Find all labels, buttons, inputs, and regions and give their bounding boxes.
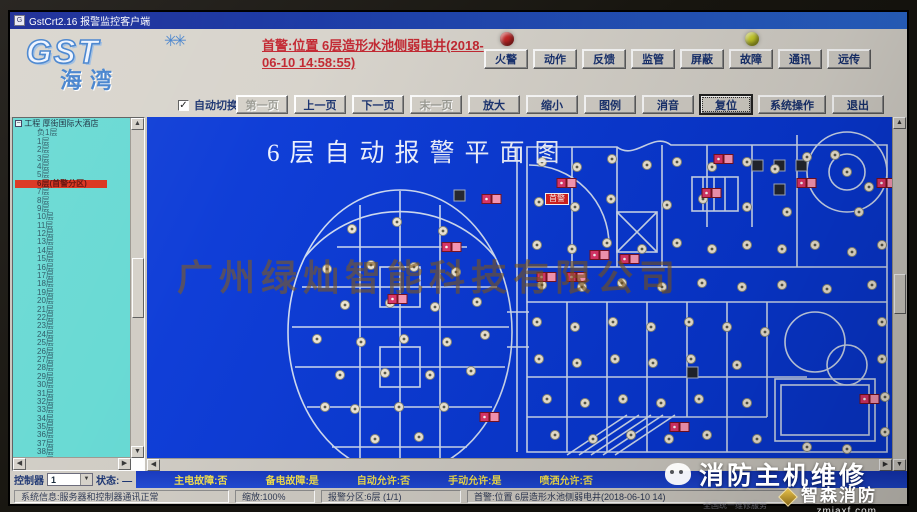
floor-list: 负1层1层2层3层4层5层6层(首警分区)7层8层9层10层11层12层13层1… <box>15 129 131 458</box>
sidebar-floor-item[interactable]: 27层 <box>15 356 131 364</box>
detector-dot <box>814 244 817 247</box>
logo-starburst-icon: ✳✳ <box>164 31 183 51</box>
detector-dot <box>554 434 557 437</box>
detector-dot <box>374 438 377 441</box>
sidebar-floor-item[interactable]: 34层 <box>15 415 131 423</box>
window-titlebar: G GstCrt2.16 报警监控客户端 <box>10 12 907 29</box>
detector-dot <box>764 331 767 334</box>
indicator-button[interactable]: 动作 <box>533 49 577 69</box>
equipment-unit-icon[interactable] <box>687 367 698 378</box>
indicator-button[interactable]: 火警 <box>484 49 528 69</box>
detector-dot <box>652 362 655 365</box>
auto-switch-label: 自动切换 <box>194 97 238 113</box>
toolbar-button[interactable]: 消音 <box>642 95 694 114</box>
detector-dot <box>443 406 446 409</box>
chevron-down-icon[interactable]: ▼ <box>80 474 92 485</box>
sidebar-floor-item[interactable]: 13层 <box>15 238 131 246</box>
detector-dot <box>576 362 579 365</box>
scroll-up-icon[interactable]: ▲ <box>893 117 906 129</box>
detector-dot <box>698 398 701 401</box>
detector-dot <box>660 402 663 405</box>
toolbar: ✓ 自动切换 第一页上一页下一页末一页放大缩小图例消音复位系统操作退出 <box>10 93 907 117</box>
sidebar-floor-item[interactable]: 18层 <box>15 280 131 288</box>
controller-value: 1 <box>51 475 56 485</box>
zoom-field: 缩放:100% <box>235 490 315 503</box>
sidebar-floor-item[interactable]: 3层 <box>15 155 131 163</box>
watermark-fine-print: 全国统一维修服务 <box>703 500 767 511</box>
sidebar-floor-item[interactable]: 22层 <box>15 314 131 322</box>
detector-dot <box>736 364 739 367</box>
detector-dot <box>612 321 615 324</box>
detector-dot <box>536 244 539 247</box>
alarm-device-icon[interactable] <box>870 395 879 404</box>
sidebar-floor-item[interactable]: 4层 <box>15 163 131 171</box>
detector-dot <box>646 164 649 167</box>
zone-tree[interactable]: − 工程 厚街国际大酒店 负1层1层2层3层4层5层6层(首警分区)7层8层9层… <box>13 118 131 458</box>
detector-dot <box>881 358 884 361</box>
indicator-button-row: 火警动作反馈监管屏蔽故障通讯远传 <box>484 49 871 69</box>
scroll-left-icon[interactable]: ◀ <box>147 459 160 471</box>
detector-dot <box>806 446 809 449</box>
toolbar-button: 末一页 <box>410 95 462 114</box>
toolbar-button[interactable]: 缩小 <box>526 95 578 114</box>
indicator-button[interactable]: 屏蔽 <box>680 49 724 69</box>
sidebar-vertical-scrollbar[interactable]: ▲ ▼ <box>130 118 144 458</box>
sidebar-floor-item[interactable]: 负1层 <box>15 129 131 137</box>
brand-diamond-icon <box>778 487 798 507</box>
sidebar-floor-item[interactable]: 10层 <box>15 213 131 221</box>
sidebar-floor-item[interactable]: 24层 <box>15 331 131 339</box>
wechat-icon <box>665 463 691 485</box>
backup-power-status: 备电故障:是 <box>265 472 318 487</box>
detector-dot <box>706 434 709 437</box>
detector-dot <box>711 166 714 169</box>
alarm-device-icon[interactable] <box>567 179 576 188</box>
manual-allow-status: 手动允许:是 <box>448 472 501 487</box>
alarm-device-icon[interactable] <box>492 195 501 204</box>
alarm-dot <box>560 182 563 185</box>
alarm-device-icon[interactable] <box>724 155 733 164</box>
sidebar-horizontal-scrollbar[interactable]: ◀ ▶ <box>13 457 131 470</box>
toolbar-button[interactable]: 退出 <box>832 95 884 114</box>
detector-dot <box>339 374 342 377</box>
sidebar-floor-item[interactable]: 31层 <box>15 390 131 398</box>
detector-dot <box>858 211 861 214</box>
auto-switch-checkbox-wrap[interactable]: ✓ 自动切换 <box>178 97 238 113</box>
detector-dot <box>756 438 759 441</box>
detector-dot <box>398 406 401 409</box>
alarm-device-icon[interactable] <box>490 413 499 422</box>
sidebar-floor-item[interactable]: 14层 <box>15 247 131 255</box>
detector-dot <box>746 206 749 209</box>
sidebar-floor-item[interactable]: 8层 <box>15 197 131 205</box>
state-field: 状态: — <box>96 472 132 487</box>
sidebar-floor-item[interactable]: 7层 <box>15 188 131 196</box>
watermark-brand-line: 智森消防 zmjaxf.com <box>781 481 877 512</box>
controller-dropdown[interactable]: 1 ▼ <box>47 473 93 486</box>
alarm-device-icon[interactable] <box>807 179 816 188</box>
logo-text-bay: 海湾 <box>60 63 120 95</box>
detector-dot <box>606 242 609 245</box>
sidebar-floor-item[interactable]: 6层(首警分区) <box>15 180 107 188</box>
detector-dot <box>746 161 749 164</box>
detector-dot <box>614 358 617 361</box>
indicator-button[interactable]: 通讯 <box>778 49 822 69</box>
detector-dot <box>434 306 437 309</box>
detector-dot <box>884 396 887 399</box>
detector-dot <box>484 334 487 337</box>
sidebar-floor-item[interactable]: 29层 <box>15 373 131 381</box>
zone-tree-panel: − 工程 厚街国际大酒店 负1层1层2层3层4层5层6层(首警分区)7层8层9层… <box>12 117 145 471</box>
toolbar-button[interactable]: 放大 <box>468 95 520 114</box>
monitor-screen: G GstCrt2.16 报警监控客户端 GST ✳✳ 海湾 首警:位置 6层造… <box>10 12 907 504</box>
detector-dot <box>538 358 541 361</box>
detector-dot <box>666 204 669 207</box>
sidebar-floor-item[interactable]: 20层 <box>15 297 131 305</box>
main-power-status: 主电故障:否 <box>174 472 227 487</box>
fault-lamp <box>745 32 759 46</box>
scroll-left-icon[interactable]: ◀ <box>13 458 26 470</box>
detector-dot <box>834 154 837 157</box>
scroll-down-icon[interactable]: ▼ <box>131 446 144 458</box>
alarm-dot <box>705 192 708 195</box>
detector-dot <box>650 326 653 329</box>
scroll-up-icon[interactable]: ▲ <box>131 118 144 130</box>
tree-collapse-icon[interactable]: − <box>15 120 22 127</box>
detector-dot <box>429 374 432 377</box>
detector-dot <box>881 321 884 324</box>
detector-dot <box>574 206 577 209</box>
detector-dot <box>622 398 625 401</box>
sidebar-floor-item[interactable]: 11层 <box>15 222 131 230</box>
spray-allow-status: 喷洒允许:否 <box>539 472 592 487</box>
sidebar-floor-item[interactable]: 1层 <box>15 138 131 146</box>
alarm-dot <box>445 246 448 249</box>
sidebar-floor-item[interactable]: 38层 <box>15 448 131 456</box>
detector-dot <box>351 228 354 231</box>
detector-dot <box>676 242 679 245</box>
first-alarm-badge: 首警 <box>545 193 569 205</box>
detector-dot <box>418 436 421 439</box>
detector-dot <box>536 321 539 324</box>
alarm-zone-field: 报警分区:6层 (1/1) <box>321 490 461 503</box>
detector-dot <box>470 370 473 373</box>
auto-allow-status: 自动允许:否 <box>357 472 410 487</box>
alarm-dot <box>717 158 720 161</box>
detector-dot <box>702 198 705 201</box>
detector-dot <box>344 304 347 307</box>
sidebar-floor-item[interactable]: 30层 <box>15 381 131 389</box>
map-title: 6层自动报警平面图 <box>267 133 570 169</box>
alarm-dot <box>800 182 803 185</box>
sidebar-floor-item[interactable]: 21层 <box>15 306 131 314</box>
detector-dot <box>574 326 577 329</box>
equipment-unit-icon[interactable] <box>752 160 763 171</box>
detector-dot <box>538 201 541 204</box>
alarm-device-icon[interactable] <box>680 423 689 432</box>
equipment-unit-icon[interactable] <box>454 190 465 201</box>
floor-plan-map[interactable]: 6层自动报警平面图 广州绿灿智能科技有限公司 首警 <box>147 117 892 471</box>
checkbox-icon[interactable]: ✓ <box>178 100 189 111</box>
indicator-button[interactable]: 反馈 <box>582 49 626 69</box>
project-name: 工程 厚街国际大酒店 <box>24 119 98 128</box>
indicator-button[interactable]: 远传 <box>827 49 871 69</box>
detector-dot <box>884 431 887 434</box>
header-panel: GST ✳✳ 海湾 首警:位置 6层造形水池侧弱电井(2018-06-10 14… <box>10 29 907 93</box>
first-alarm-banner: 首警:位置 6层造形水池侧弱电井(2018-06-10 14:58:55) <box>262 37 494 71</box>
detector-dot <box>774 168 777 171</box>
alarm-dot <box>880 182 883 185</box>
detector-dot <box>316 338 319 341</box>
map-watermark-text: 广州绿灿智能科技有限公司 <box>177 249 877 301</box>
controller-selector: 控制器 1 ▼ 状态: — <box>10 471 136 488</box>
detector-dot <box>690 358 693 361</box>
scroll-right-icon[interactable]: ▶ <box>118 458 131 470</box>
toolbar-button[interactable]: 系统操作 <box>758 95 826 114</box>
detector-dot <box>384 372 387 375</box>
detector-dot <box>476 301 479 304</box>
alarm-dot <box>863 398 866 401</box>
watermark-brand: 智森消防 <box>781 481 877 506</box>
alarm-dot <box>483 416 486 419</box>
detector-dot <box>746 244 749 247</box>
detector-dot <box>881 244 884 247</box>
detector-dot <box>360 341 363 344</box>
alarm-device-icon[interactable] <box>712 189 721 198</box>
sidebar-floor-item[interactable]: 32层 <box>15 398 131 406</box>
sidebar-floor-item[interactable]: 16层 <box>15 264 131 272</box>
detector-dot <box>688 321 691 324</box>
sidebar-floor-item[interactable]: 26层 <box>15 348 131 356</box>
detector-dot <box>668 438 671 441</box>
detector-dot <box>610 198 613 201</box>
system-info-field: 系统信息:服务器和控制器通讯正常 <box>14 490 229 503</box>
scroll-right-icon[interactable]: ▶ <box>879 459 892 471</box>
sidebar-floor-item[interactable]: 2层 <box>15 146 131 154</box>
window-title: GstCrt2.16 报警监控客户端 <box>29 13 150 28</box>
detector-dot <box>806 156 809 159</box>
indicator-button[interactable]: 监管 <box>631 49 675 69</box>
detector-dot <box>846 448 849 451</box>
detector-dot <box>786 211 789 214</box>
detector-dot <box>396 221 399 224</box>
scrollbar-thumb[interactable] <box>894 274 906 314</box>
tree-root-project[interactable]: − 工程 厚街国际大酒店 <box>15 120 131 128</box>
scrollbar-thumb[interactable] <box>132 258 144 318</box>
nav-button-row: 第一页上一页下一页末一页放大缩小图例消音复位系统操作退出 <box>236 95 884 114</box>
indicator-button[interactable]: 故障 <box>729 49 773 69</box>
toolbar-button[interactable]: 图例 <box>584 95 636 114</box>
detector-dot <box>846 171 849 174</box>
indicator-lamp-row <box>484 32 884 48</box>
map-vertical-scrollbar[interactable]: ▲ ▼ <box>892 117 906 471</box>
detector-dot <box>746 402 749 405</box>
alarm-dot <box>485 198 488 201</box>
sidebar-floor-item[interactable]: 23层 <box>15 322 131 330</box>
detector-dot <box>576 166 579 169</box>
app-icon: G <box>14 15 25 26</box>
detector-dot <box>868 186 871 189</box>
detector-dot <box>446 341 449 344</box>
detector-dot <box>324 406 327 409</box>
sidebar-floor-item[interactable]: 37层 <box>15 440 131 448</box>
toolbar-button[interactable]: 下一页 <box>352 95 404 114</box>
watermark-site: zmjaxf.com <box>781 506 877 512</box>
sidebar-floor-item[interactable]: 25层 <box>15 339 131 347</box>
gst-logo: GST ✳✳ 海湾 <box>26 33 226 89</box>
detector-dot <box>726 326 729 329</box>
sidebar-floor-item[interactable]: 19层 <box>15 289 131 297</box>
toolbar-button[interactable]: 复位 <box>700 95 752 114</box>
detector-dot <box>630 434 633 437</box>
main-area: − 工程 厚街国际大酒店 负1层1层2层3层4层5层6层(首警分区)7层8层9层… <box>10 117 907 471</box>
toolbar-button[interactable]: 上一页 <box>294 95 346 114</box>
detector-dot <box>584 402 587 405</box>
controller-label: 控制器 <box>14 472 44 487</box>
toolbar-button: 第一页 <box>236 95 288 114</box>
sidebar-floor-item[interactable]: 33层 <box>15 406 131 414</box>
fire-alarm-lamp <box>500 32 514 46</box>
sidebar-floor-item[interactable]: 15层 <box>15 255 131 263</box>
sidebar-floor-item[interactable]: 36层 <box>15 431 131 439</box>
scroll-down-icon[interactable]: ▼ <box>893 459 906 471</box>
detector-dot <box>611 158 614 161</box>
sidebar-floor-item[interactable]: 9层 <box>15 205 131 213</box>
detector-dot <box>592 438 595 441</box>
detector-dot <box>676 161 679 164</box>
sidebar-floor-item[interactable]: 35层 <box>15 423 131 431</box>
sidebar-floor-item[interactable]: 17层 <box>15 272 131 280</box>
detector-dot <box>354 408 357 411</box>
detector-dot <box>403 338 406 341</box>
detector-dot <box>546 398 549 401</box>
photo-of-monitor: G GstCrt2.16 报警监控客户端 GST ✳✳ 海湾 首警:位置 6层造… <box>0 0 917 512</box>
detector-dot <box>442 230 445 233</box>
sidebar-floor-item[interactable]: 12层 <box>15 230 131 238</box>
alarm-dot <box>673 426 676 429</box>
equipment-unit-icon[interactable] <box>774 184 785 195</box>
sidebar-floor-item[interactable]: 28层 <box>15 364 131 372</box>
